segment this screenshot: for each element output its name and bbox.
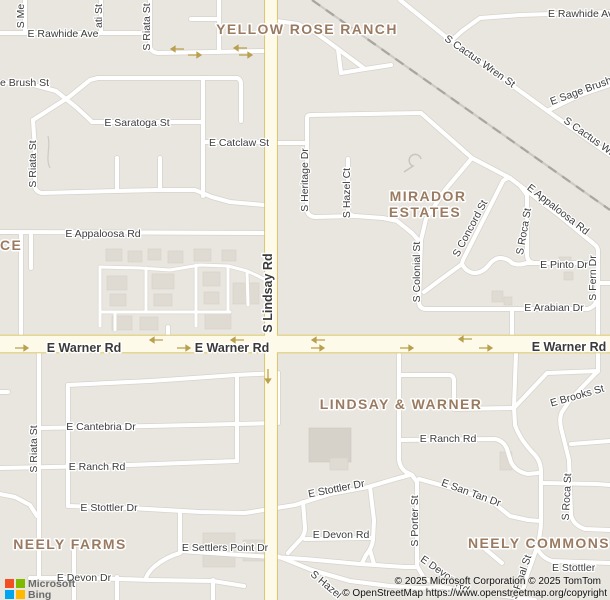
svg-text:E Stottler: E Stottler [552, 562, 596, 574]
svg-text:NEELY FARMS: NEELY FARMS [13, 536, 126, 552]
svg-text:e Brush St: e Brush St [0, 77, 49, 89]
svg-text:E Saratoga St: E Saratoga St [104, 117, 169, 129]
svg-text:E Warner Rd: E Warner Rd [47, 341, 122, 355]
svg-text:E Rawhide Av: E Rawhide Av [548, 8, 610, 20]
svg-text:S Riata St: S Riata St [141, 3, 153, 50]
svg-text:NEELY COMMONS: NEELY COMMONS [468, 535, 610, 551]
svg-text:S Colonial St: S Colonial St [411, 242, 423, 303]
svg-text:E Cantebria Dr: E Cantebria Dr [66, 421, 136, 433]
svg-text:E Rawhide Ave: E Rawhide Ave [27, 28, 98, 40]
svg-text:© OpenStreetMap https://www.op: © OpenStreetMap https://www.openstreetma… [342, 588, 607, 599]
svg-text:LINDSAY & WARNER: LINDSAY & WARNER [320, 396, 482, 412]
svg-text:E Pinto Dr: E Pinto Dr [540, 259, 588, 271]
svg-text:E Arabian Dr: E Arabian Dr [524, 302, 584, 314]
svg-text:ESTATES: ESTATES [389, 204, 461, 220]
svg-text:MIRADOR: MIRADOR [390, 188, 467, 204]
svg-text:S Lindsay Rd: S Lindsay Rd [261, 253, 275, 332]
svg-text:E Settlers Point Dr: E Settlers Point Dr [182, 542, 269, 554]
svg-text:S Riata St: S Riata St [28, 425, 40, 472]
svg-text:YELLOW ROSE RANCH: YELLOW ROSE RANCH [216, 21, 398, 37]
svg-text:E Ranch Rd: E Ranch Rd [69, 461, 126, 473]
svg-text:ati St: ati St [93, 4, 105, 28]
svg-text:E Catclaw St: E Catclaw St [209, 137, 269, 149]
svg-text:S Me: S Me [15, 4, 27, 29]
svg-text:S Roca St: S Roca St [560, 473, 574, 521]
svg-text:E Stottler Dr: E Stottler Dr [80, 502, 138, 514]
svg-text:E Warner Rd: E Warner Rd [195, 341, 270, 355]
svg-text:E Appaloosa Rd: E Appaloosa Rd [65, 228, 140, 240]
svg-text:Bing: Bing [28, 589, 51, 600]
svg-text:S Porter St: S Porter St [409, 495, 421, 546]
svg-text:CE: CE [0, 237, 22, 253]
svg-text:S Fern Dr: S Fern Dr [587, 255, 599, 301]
svg-text:S Hazel Ct: S Hazel Ct [341, 168, 353, 218]
svg-text:E Ranch Rd: E Ranch Rd [420, 433, 477, 445]
svg-text:S Riata St: S Riata St [27, 140, 39, 187]
svg-text:© 2025 Microsoft Corporation ©: © 2025 Microsoft Corporation © 2025 TomT… [395, 576, 601, 587]
svg-text:E Warner Rd: E Warner Rd [532, 340, 607, 354]
svg-text:S Heritage Dr: S Heritage Dr [299, 148, 311, 212]
svg-text:E Devon Rd: E Devon Rd [313, 529, 370, 541]
